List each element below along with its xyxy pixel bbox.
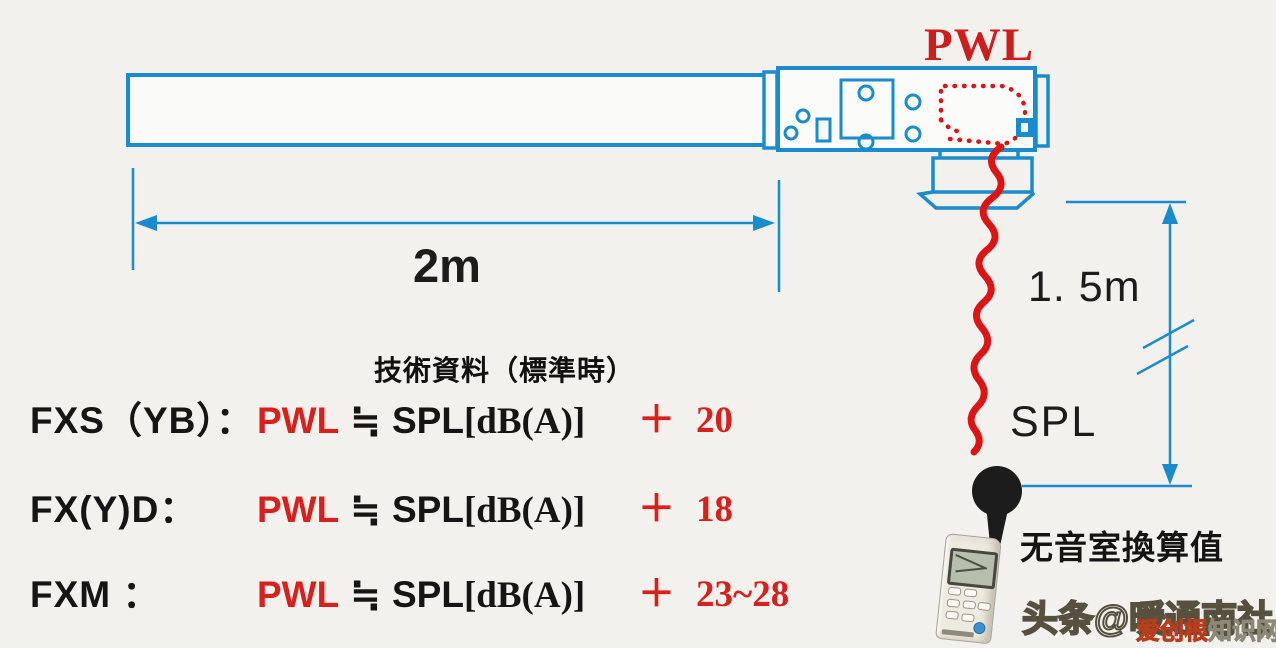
- correction-value: 23~28: [696, 569, 789, 621]
- fan-unit-outline: [778, 68, 1048, 150]
- approx-symbol: ≒: [350, 569, 381, 621]
- correction-value: 20: [696, 395, 733, 447]
- pwl-term: PWL: [257, 484, 339, 536]
- correction-value: 18: [696, 484, 733, 536]
- meter-brand-label: [942, 629, 974, 637]
- formula-row-fxs: FXS（YB）： PWL ≒ SPL[dB(A)] ＋ 20: [0, 395, 900, 447]
- duct-length-label: 2m: [413, 238, 481, 293]
- diffuser-outline: [920, 150, 1033, 208]
- watermark-overlay-white: 知识网: [1208, 618, 1276, 645]
- watermark-overlay-red: 爱创根: [1136, 618, 1208, 645]
- dimension-break-marks: [1137, 320, 1194, 374]
- model-label: FX(Y)D：: [30, 484, 197, 536]
- pwl-term: PWL: [257, 395, 339, 447]
- anechoic-note: 无音室換算值: [1020, 521, 1224, 569]
- microphone-ball-icon: [972, 466, 1022, 546]
- pwl-label: PWL: [924, 18, 1034, 72]
- sound-level-meter: [935, 533, 1002, 644]
- spl-term: SPL[dB(A)]: [392, 484, 585, 537]
- formula-row-fxm: FXM ： PWL ≒ SPL[dB(A)] ＋ 23~28: [0, 569, 900, 621]
- spl-term: SPL[dB(A)]: [392, 395, 585, 448]
- model-label: FXS（YB）：: [30, 395, 254, 447]
- plus-symbol: ＋: [638, 484, 675, 536]
- approx-symbol: ≒: [350, 395, 381, 447]
- spl-term: SPL[dB(A)]: [392, 569, 585, 622]
- spl-label: SPL: [1010, 398, 1097, 447]
- noise-measurement-diagram: PWL 2m 1. 5m SPL 无音室換算值 技術資料（標準時） FXS（YB…: [0, 0, 1276, 648]
- formula-heading: 技術資料（標準時）: [374, 349, 635, 389]
- motor-icon: [1016, 118, 1033, 137]
- plus-symbol: ＋: [638, 569, 675, 621]
- mic-distance-label: 1. 5m: [1028, 263, 1141, 312]
- model-label: FXM ：: [30, 569, 160, 621]
- watermark-overlay: 爱创根知识网: [1136, 611, 1276, 646]
- pwl-term: PWL: [257, 569, 339, 621]
- duct-outline: [128, 72, 777, 148]
- meter-power-button: [973, 621, 986, 634]
- approx-symbol: ≒: [350, 484, 381, 536]
- lcd-screen: [947, 548, 999, 590]
- meter-buttons: [942, 586, 990, 630]
- plus-symbol: ＋: [638, 395, 675, 447]
- formula-row-fxyd: FX(Y)D： PWL ≒ SPL[dB(A)] ＋ 18: [0, 484, 900, 536]
